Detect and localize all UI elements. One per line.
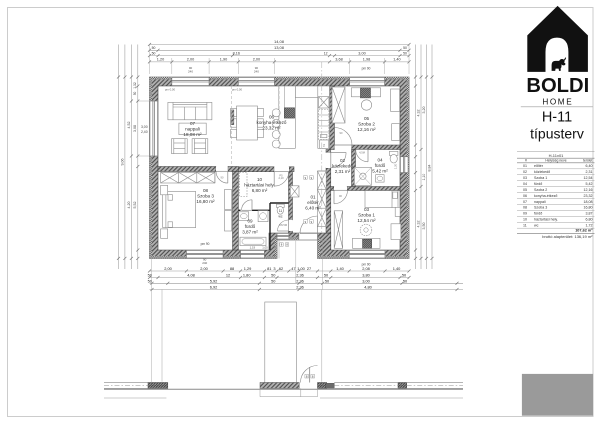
svg-text:wc: wc [534, 224, 539, 228]
svg-text:3,68: 3,68 [335, 58, 342, 62]
svg-text:H-11v01: H-11v01 [549, 153, 565, 158]
svg-text:23,32 m²: 23,32 m² [262, 125, 281, 130]
svg-text:03: 03 [523, 176, 527, 180]
svg-text:08: 08 [523, 206, 527, 210]
svg-text:04: 04 [523, 182, 527, 186]
svg-text:05: 05 [364, 116, 370, 121]
svg-text:3,08: 3,08 [133, 125, 137, 132]
svg-text:1,29: 1,29 [244, 266, 252, 271]
svg-text:18,08 m²: 18,08 m² [183, 132, 202, 137]
svg-text:4,08: 4,08 [187, 272, 195, 277]
svg-text:2,36: 2,36 [296, 272, 304, 277]
svg-text:pm 90: pm 90 [201, 242, 210, 246]
svg-text:Szoba 2: Szoba 2 [534, 188, 547, 192]
svg-text:5,42 m²: 5,42 m² [372, 168, 388, 173]
svg-text:Helyiség neve: Helyiség neve [545, 159, 566, 163]
svg-text:9,06: 9,06 [120, 159, 124, 166]
svg-text:11: 11 [279, 209, 283, 213]
svg-text:16,80: 16,80 [584, 206, 593, 210]
svg-text:02: 02 [523, 170, 527, 174]
svg-text:2,31 m²: 2,31 m² [335, 169, 351, 174]
svg-text:3,00: 3,00 [141, 125, 148, 129]
svg-text:nappali: nappali [185, 127, 200, 132]
svg-text:1,05: 1,05 [262, 246, 268, 250]
svg-text:1,19: 1,19 [250, 246, 256, 250]
svg-text:1,10: 1,10 [422, 174, 426, 181]
svg-text:09: 09 [523, 212, 527, 216]
svg-text:6,80 m²: 6,80 m² [252, 188, 268, 193]
svg-text:#: # [525, 159, 527, 163]
svg-text:3: 3 [273, 266, 275, 271]
svg-text:03: 03 [364, 207, 370, 212]
svg-text:62: 62 [279, 266, 283, 271]
svg-text:50: 50 [403, 46, 407, 50]
svg-text:4,32: 4,32 [417, 221, 421, 228]
svg-text:2,36: 2,36 [296, 284, 304, 289]
svg-text:H-11: H-11 [542, 110, 572, 126]
svg-text:240: 240 [188, 70, 193, 74]
svg-text:wc: wc [279, 214, 283, 218]
svg-text:23,32: 23,32 [584, 194, 593, 198]
svg-text:3,20: 3,20 [422, 107, 426, 114]
svg-text:4,20: 4,20 [127, 202, 131, 209]
svg-text:közlekedő: közlekedő [534, 170, 550, 174]
svg-text:12,54: 12,54 [584, 176, 593, 180]
svg-text:50: 50 [152, 46, 156, 50]
svg-text:előtér: előtér [307, 200, 319, 205]
svg-text:12,54 m²: 12,54 m² [357, 218, 376, 223]
svg-text:2: 2 [323, 143, 325, 147]
svg-text:BOLDI: BOLDI [526, 75, 589, 97]
svg-text:3,00: 3,00 [358, 51, 365, 55]
svg-text:240: 240 [202, 261, 207, 265]
svg-text:5,52: 5,52 [133, 202, 137, 209]
svg-text:08: 08 [203, 188, 209, 193]
svg-text:2,31: 2,31 [586, 170, 593, 174]
svg-text:3,87: 3,87 [586, 212, 593, 216]
svg-text:1,32: 1,32 [133, 82, 137, 89]
svg-text:1,20: 1,20 [157, 58, 164, 62]
svg-text:nappali: nappali [534, 200, 546, 204]
svg-text:konyha-étkező: konyha-étkező [534, 194, 557, 198]
svg-text:01: 01 [310, 195, 316, 200]
svg-text:2,00: 2,00 [187, 58, 194, 62]
svg-text:1,98: 1,98 [363, 58, 370, 62]
svg-text:3,50: 3,50 [422, 223, 426, 230]
svg-text:11: 11 [523, 224, 527, 228]
svg-text:16,80 m²: 16,80 m² [196, 199, 215, 204]
svg-text:2,40: 2,40 [141, 130, 148, 134]
svg-text:fürdő: fürdő [375, 163, 386, 168]
svg-text:50: 50 [403, 51, 407, 55]
svg-text:2,00: 2,00 [253, 58, 260, 62]
svg-text:4,32: 4,32 [417, 110, 421, 117]
svg-text:1,80: 1,80 [243, 272, 251, 277]
svg-text:4,80: 4,80 [364, 284, 372, 289]
svg-text:81: 81 [267, 266, 271, 271]
svg-text:2,10: 2,10 [278, 176, 284, 180]
svg-text:10: 10 [257, 177, 263, 182]
svg-text:Szoba 2: Szoba 2 [358, 121, 375, 126]
svg-text:50: 50 [152, 51, 156, 55]
svg-text:2,36: 2,36 [296, 278, 304, 283]
svg-text:3,80: 3,80 [362, 272, 370, 277]
svg-text:bruttó alapterület: 136,19 m²: bruttó alapterület: 136,19 m² [542, 234, 593, 239]
svg-text:27: 27 [307, 266, 311, 271]
svg-text:240: 240 [254, 70, 259, 74]
svg-text:1,40: 1,40 [336, 266, 344, 271]
svg-text:12: 12 [226, 272, 230, 277]
svg-text:6,92: 6,92 [210, 284, 218, 289]
svg-text:Szoba 1: Szoba 1 [358, 212, 375, 217]
svg-text:1,20: 1,20 [393, 163, 397, 169]
svg-text:10: 10 [523, 218, 527, 222]
svg-text:1,40: 1,40 [393, 58, 400, 62]
svg-text:terület: terület [583, 159, 592, 163]
svg-text:50: 50 [133, 92, 137, 96]
svg-text:6,40: 6,40 [586, 164, 593, 168]
svg-text:1,00: 1,00 [297, 266, 305, 271]
svg-text:háztartási hely.: háztartási hely. [244, 182, 275, 187]
svg-text:88: 88 [230, 266, 234, 271]
svg-text:05: 05 [523, 188, 527, 192]
svg-text:Szoba 3: Szoba 3 [197, 193, 214, 198]
svg-text:2,08: 2,08 [362, 266, 370, 271]
svg-text:RN 5M: RN 5M [279, 223, 287, 227]
svg-text:12,16: 12,16 [584, 188, 593, 192]
svg-text:fürdő: fürdő [534, 182, 542, 186]
svg-text:12: 12 [324, 51, 328, 55]
svg-text:13,08: 13,08 [274, 45, 285, 50]
svg-text:06: 06 [523, 194, 527, 198]
svg-text:8,16: 8,16 [233, 51, 240, 55]
svg-text:01: 01 [523, 164, 527, 168]
svg-text:07: 07 [190, 121, 196, 126]
svg-text:1,72: 1,72 [586, 224, 593, 228]
svg-text:pm 0,00: pm 0,00 [165, 87, 176, 91]
svg-text:pm 90: pm 90 [362, 67, 371, 71]
svg-text:09: 09 [247, 219, 253, 224]
svg-text:2,00: 2,00 [200, 266, 208, 271]
svg-text:fürdő: fürdő [245, 224, 256, 229]
svg-text:3,00: 3,00 [362, 278, 370, 283]
svg-text:háztartási hely.: háztartási hely. [534, 218, 558, 222]
svg-text:18,08: 18,08 [584, 200, 593, 204]
svg-text:1,90: 1,90 [220, 58, 227, 62]
svg-text:konyha-étkező: konyha-étkező [257, 120, 287, 125]
svg-text:2,00: 2,00 [164, 266, 172, 271]
svg-text:típusterv: típusterv [530, 126, 584, 142]
svg-text:5,92: 5,92 [210, 278, 218, 283]
svg-text:pm 0,00: pm 0,00 [232, 87, 243, 91]
svg-text:07: 07 [523, 200, 527, 204]
svg-text:4,52: 4,52 [127, 122, 131, 129]
svg-text:06: 06 [269, 115, 275, 120]
svg-text:6,40 m²: 6,40 m² [305, 205, 321, 210]
svg-text:12,16 m²: 12,16 m² [357, 127, 376, 132]
svg-text:előtér: előtér [534, 164, 544, 168]
svg-text:14,08: 14,08 [274, 39, 285, 44]
svg-text:Szoba 1: Szoba 1 [534, 176, 547, 180]
svg-text:1,40: 1,40 [393, 266, 401, 271]
svg-text:5,42: 5,42 [586, 182, 593, 186]
svg-text:HOME: HOME [542, 98, 573, 107]
svg-text:04: 04 [377, 158, 383, 163]
svg-text:3,87 m²: 3,87 m² [242, 229, 258, 234]
svg-text:4,5M: 4,5M [359, 151, 365, 155]
svg-text:47: 47 [291, 266, 295, 271]
svg-text:6,80: 6,80 [586, 218, 593, 222]
svg-text:közlekedő: közlekedő [332, 163, 353, 168]
svg-text:8,84: 8,84 [428, 165, 432, 172]
svg-text:107,62 m²: 107,62 m² [575, 229, 593, 233]
svg-text:Szoba 3: Szoba 3 [534, 206, 547, 210]
svg-text:fürdő: fürdő [534, 212, 542, 216]
svg-text:02: 02 [340, 158, 346, 163]
